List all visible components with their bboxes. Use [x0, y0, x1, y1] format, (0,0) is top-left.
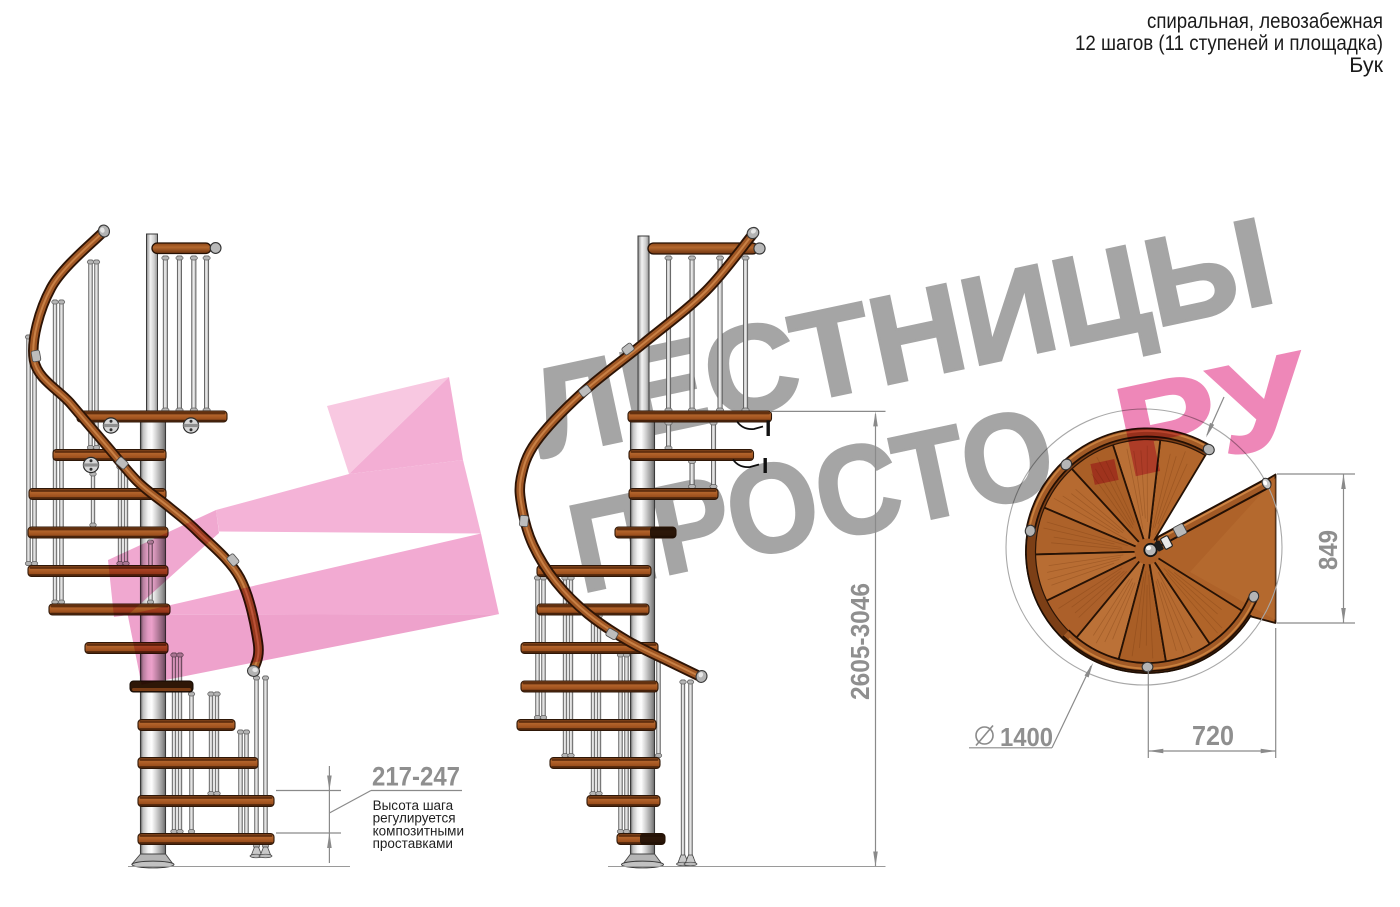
svg-text:217-247: 217-247 [372, 762, 460, 792]
svg-text:849: 849 [1313, 530, 1343, 570]
svg-text:2605-3046: 2605-3046 [845, 583, 875, 700]
svg-text:720: 720 [1192, 720, 1234, 751]
svg-text:Высота шагарегулируетсякомпози: Высота шагарегулируетсякомпозитнымипрост… [373, 798, 464, 851]
svg-text:Бук: Бук [1349, 53, 1383, 77]
svg-text:12 шагов (11 ступеней и площад: 12 шагов (11 ступеней и площадка) [1075, 31, 1383, 55]
svg-text:спиральная, левозабежная: спиральная, левозабежная [1147, 9, 1383, 33]
